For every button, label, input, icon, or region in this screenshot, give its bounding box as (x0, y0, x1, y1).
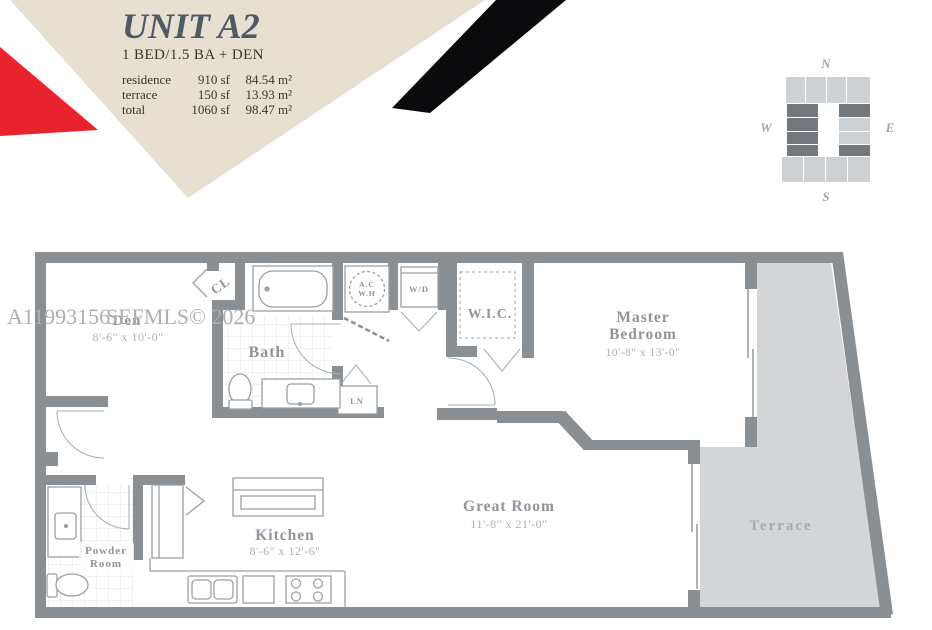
wall-bottom (35, 607, 891, 618)
den-door-swing (57, 411, 104, 458)
wall-hall-bottom (437, 408, 497, 420)
washer-dryer-label: W/D (409, 284, 429, 294)
wic-hanging-rod (460, 272, 515, 338)
keyplan-block (827, 77, 846, 103)
area-row-label: total (122, 103, 185, 117)
wall-terrace-stub-mid (745, 417, 757, 447)
master-bedroom-label-line2: Bedroom (609, 326, 677, 343)
area-row-sf: 150 sf (185, 88, 230, 102)
keyplan-unit-block (839, 145, 870, 156)
area-row-label: residence (122, 73, 185, 87)
unit-title: UNIT A2 (122, 8, 322, 44)
master-bedroom-dims: 10'-8" x 13'-0" (606, 347, 681, 359)
bath-sink (287, 384, 314, 404)
pantry-bifold-door (186, 487, 204, 515)
area-row-sqm: 84.54 m² (230, 73, 292, 87)
linen-label: LN (350, 396, 364, 406)
area-row-sf: 910 sf (185, 73, 230, 87)
wall-master-left (522, 263, 534, 358)
kitchen-sink-basin-left (192, 580, 211, 599)
ac-closet-door (344, 318, 389, 341)
ac-wh-label-line2: W.H (358, 289, 376, 298)
refrigerator (152, 485, 183, 558)
powder-sink-faucet (65, 525, 68, 528)
area-row-label: terrace (122, 88, 185, 102)
wall-cl-stub (207, 263, 219, 271)
keyplan-block (848, 157, 870, 182)
wall-top (35, 252, 842, 263)
wall-wic-left (446, 263, 457, 357)
bath-label: Bath (249, 344, 286, 361)
powder-room-label-line2: Room (90, 558, 122, 570)
wall-greatroom-stub-a (688, 447, 700, 464)
wall-master-bottom-b (583, 440, 700, 450)
wall-den-bottom (46, 396, 108, 407)
area-row-sqm: 13.93 m² (230, 88, 292, 102)
wall-entry-stub (46, 452, 58, 466)
area-row-sqm: 98.47 m² (230, 103, 292, 117)
wic-bifold-door (484, 349, 520, 371)
den-dims: 8'-6" x 10'-0" (92, 330, 163, 344)
watermark-source: SEFMLS© 2026 (106, 304, 255, 329)
wall-powder-top-left (46, 475, 96, 485)
compass-west-label: W (760, 120, 773, 135)
keyplan-block (806, 77, 826, 103)
cl-bifold-door (193, 269, 207, 297)
closet-label: CL (208, 273, 233, 297)
kitchen-island-inner (241, 496, 315, 509)
wall-master-bottom-a (497, 411, 563, 423)
kitchen-sink-basin-right (214, 580, 233, 599)
area-table: residence 910 sf 84.54 m² terrace 150 sf… (122, 73, 322, 117)
keyplan-block (839, 132, 870, 144)
compass-south-label: S (822, 189, 829, 204)
keyplan-block (839, 118, 870, 131)
master-bedroom-label-line1: Master (616, 309, 669, 326)
mls-watermark: A11993156 SEFMLS© 2026 (7, 304, 255, 329)
unit-subtitle: 1 BED/1.5 BA + DEN (122, 47, 322, 64)
wic-label: W.I.C. (468, 307, 513, 322)
dishwasher (243, 576, 274, 603)
keyplan-unit-block (787, 118, 818, 131)
bathtub-faucet (265, 287, 269, 291)
site-keyplan: N W E S (760, 56, 894, 204)
keyplan-block (804, 157, 825, 182)
wall-greatroom-stub-b (688, 590, 700, 607)
powder-room-label-line1: Powder (85, 545, 127, 557)
great-room-label: Great Room (463, 498, 555, 515)
wall-powder-right (133, 475, 143, 560)
compass-north-label: N (820, 56, 831, 71)
keyplan-block (782, 157, 803, 182)
linen-bifold-door (341, 365, 371, 384)
keyplan-block (826, 157, 847, 182)
bath-toilet-tank (229, 400, 252, 409)
terrace-area (700, 263, 881, 607)
watermark-listing-id: A11993156 (7, 304, 110, 329)
keyplan-unit-block (787, 145, 818, 156)
kitchen-label: Kitchen (255, 527, 315, 544)
wd-bifold-door (401, 312, 437, 331)
floorplan-page: N W E S (0, 0, 932, 630)
wall-wd-right (438, 263, 447, 310)
powder-toilet-bowl (56, 574, 88, 596)
title-block: UNIT A2 1 BED/1.5 BA + DEN residence 910… (122, 8, 322, 117)
wall-terrace-stub-top (745, 263, 757, 289)
keyplan-block (786, 77, 805, 103)
area-row-sf: 1060 sf (185, 103, 230, 117)
keyplan-block (847, 77, 870, 103)
wall-wic-bottom (446, 346, 477, 357)
keyplan-unit-block (839, 104, 870, 117)
keyplan-unit-block (787, 132, 818, 144)
ac-wh-label-line1: A.C (359, 280, 375, 289)
terrace-label: Terrace (749, 518, 812, 534)
great-room-dims: 11'-8" x 21'-0" (470, 517, 547, 531)
kitchen-dims: 8'-6" x 12'-6" (249, 544, 320, 558)
bath-sink-faucet (299, 403, 302, 406)
compass-east-label: E (885, 120, 895, 135)
keyplan-unit-block (787, 104, 818, 117)
master-door-swing (448, 358, 495, 405)
